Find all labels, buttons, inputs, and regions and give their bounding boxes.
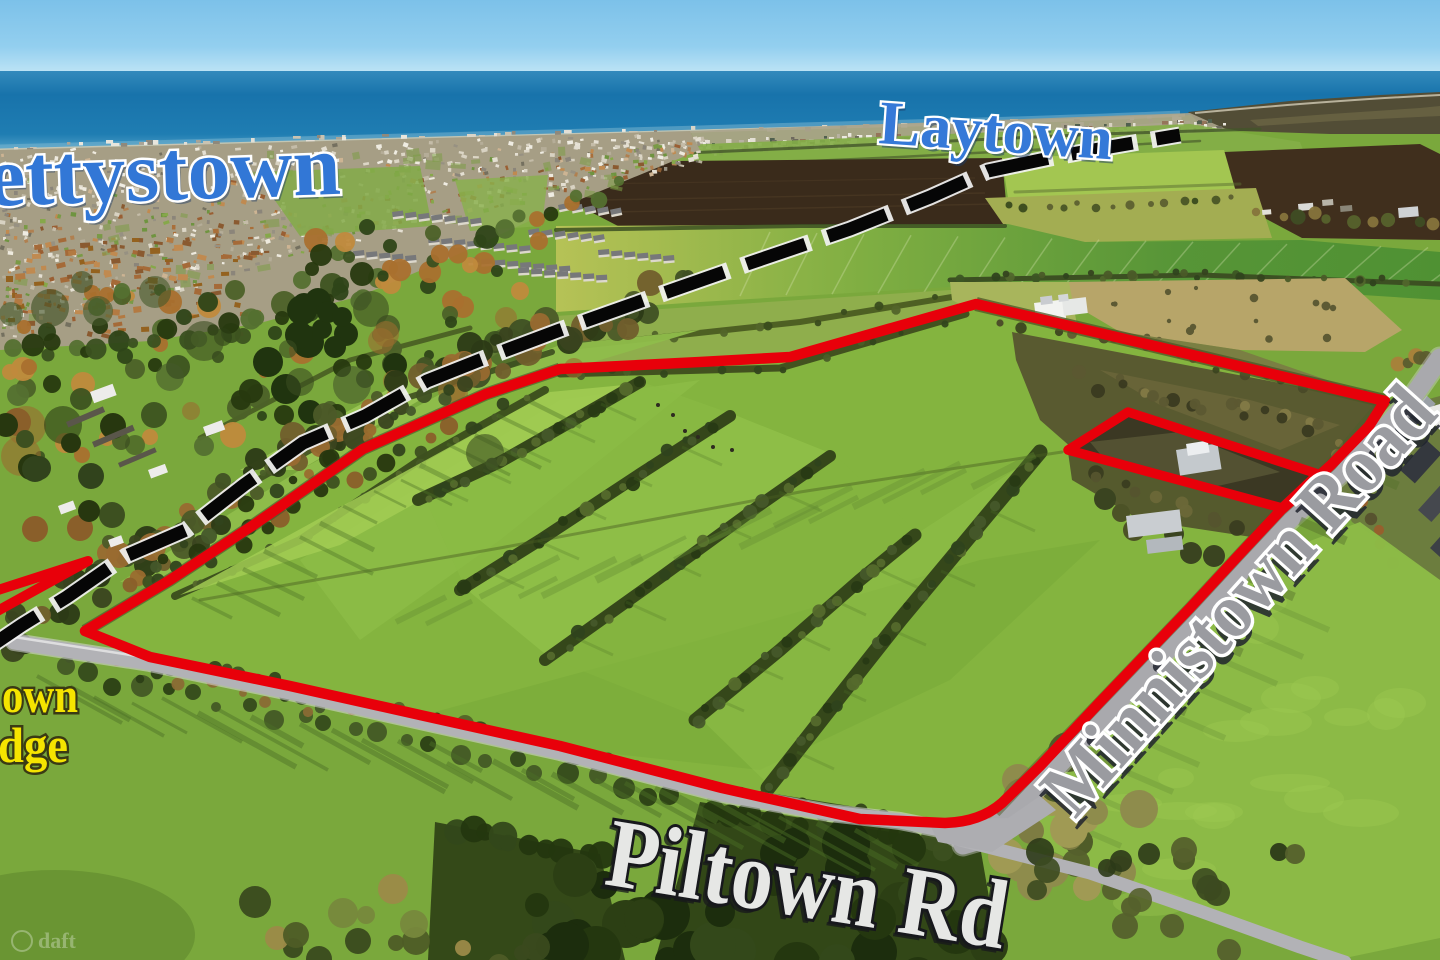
svg-text:daft: daft	[38, 928, 77, 953]
svg-text:ettystown: ettystown	[0, 117, 342, 225]
svg-text:dge: dge	[0, 717, 68, 773]
svg-text:own: own	[2, 667, 78, 723]
